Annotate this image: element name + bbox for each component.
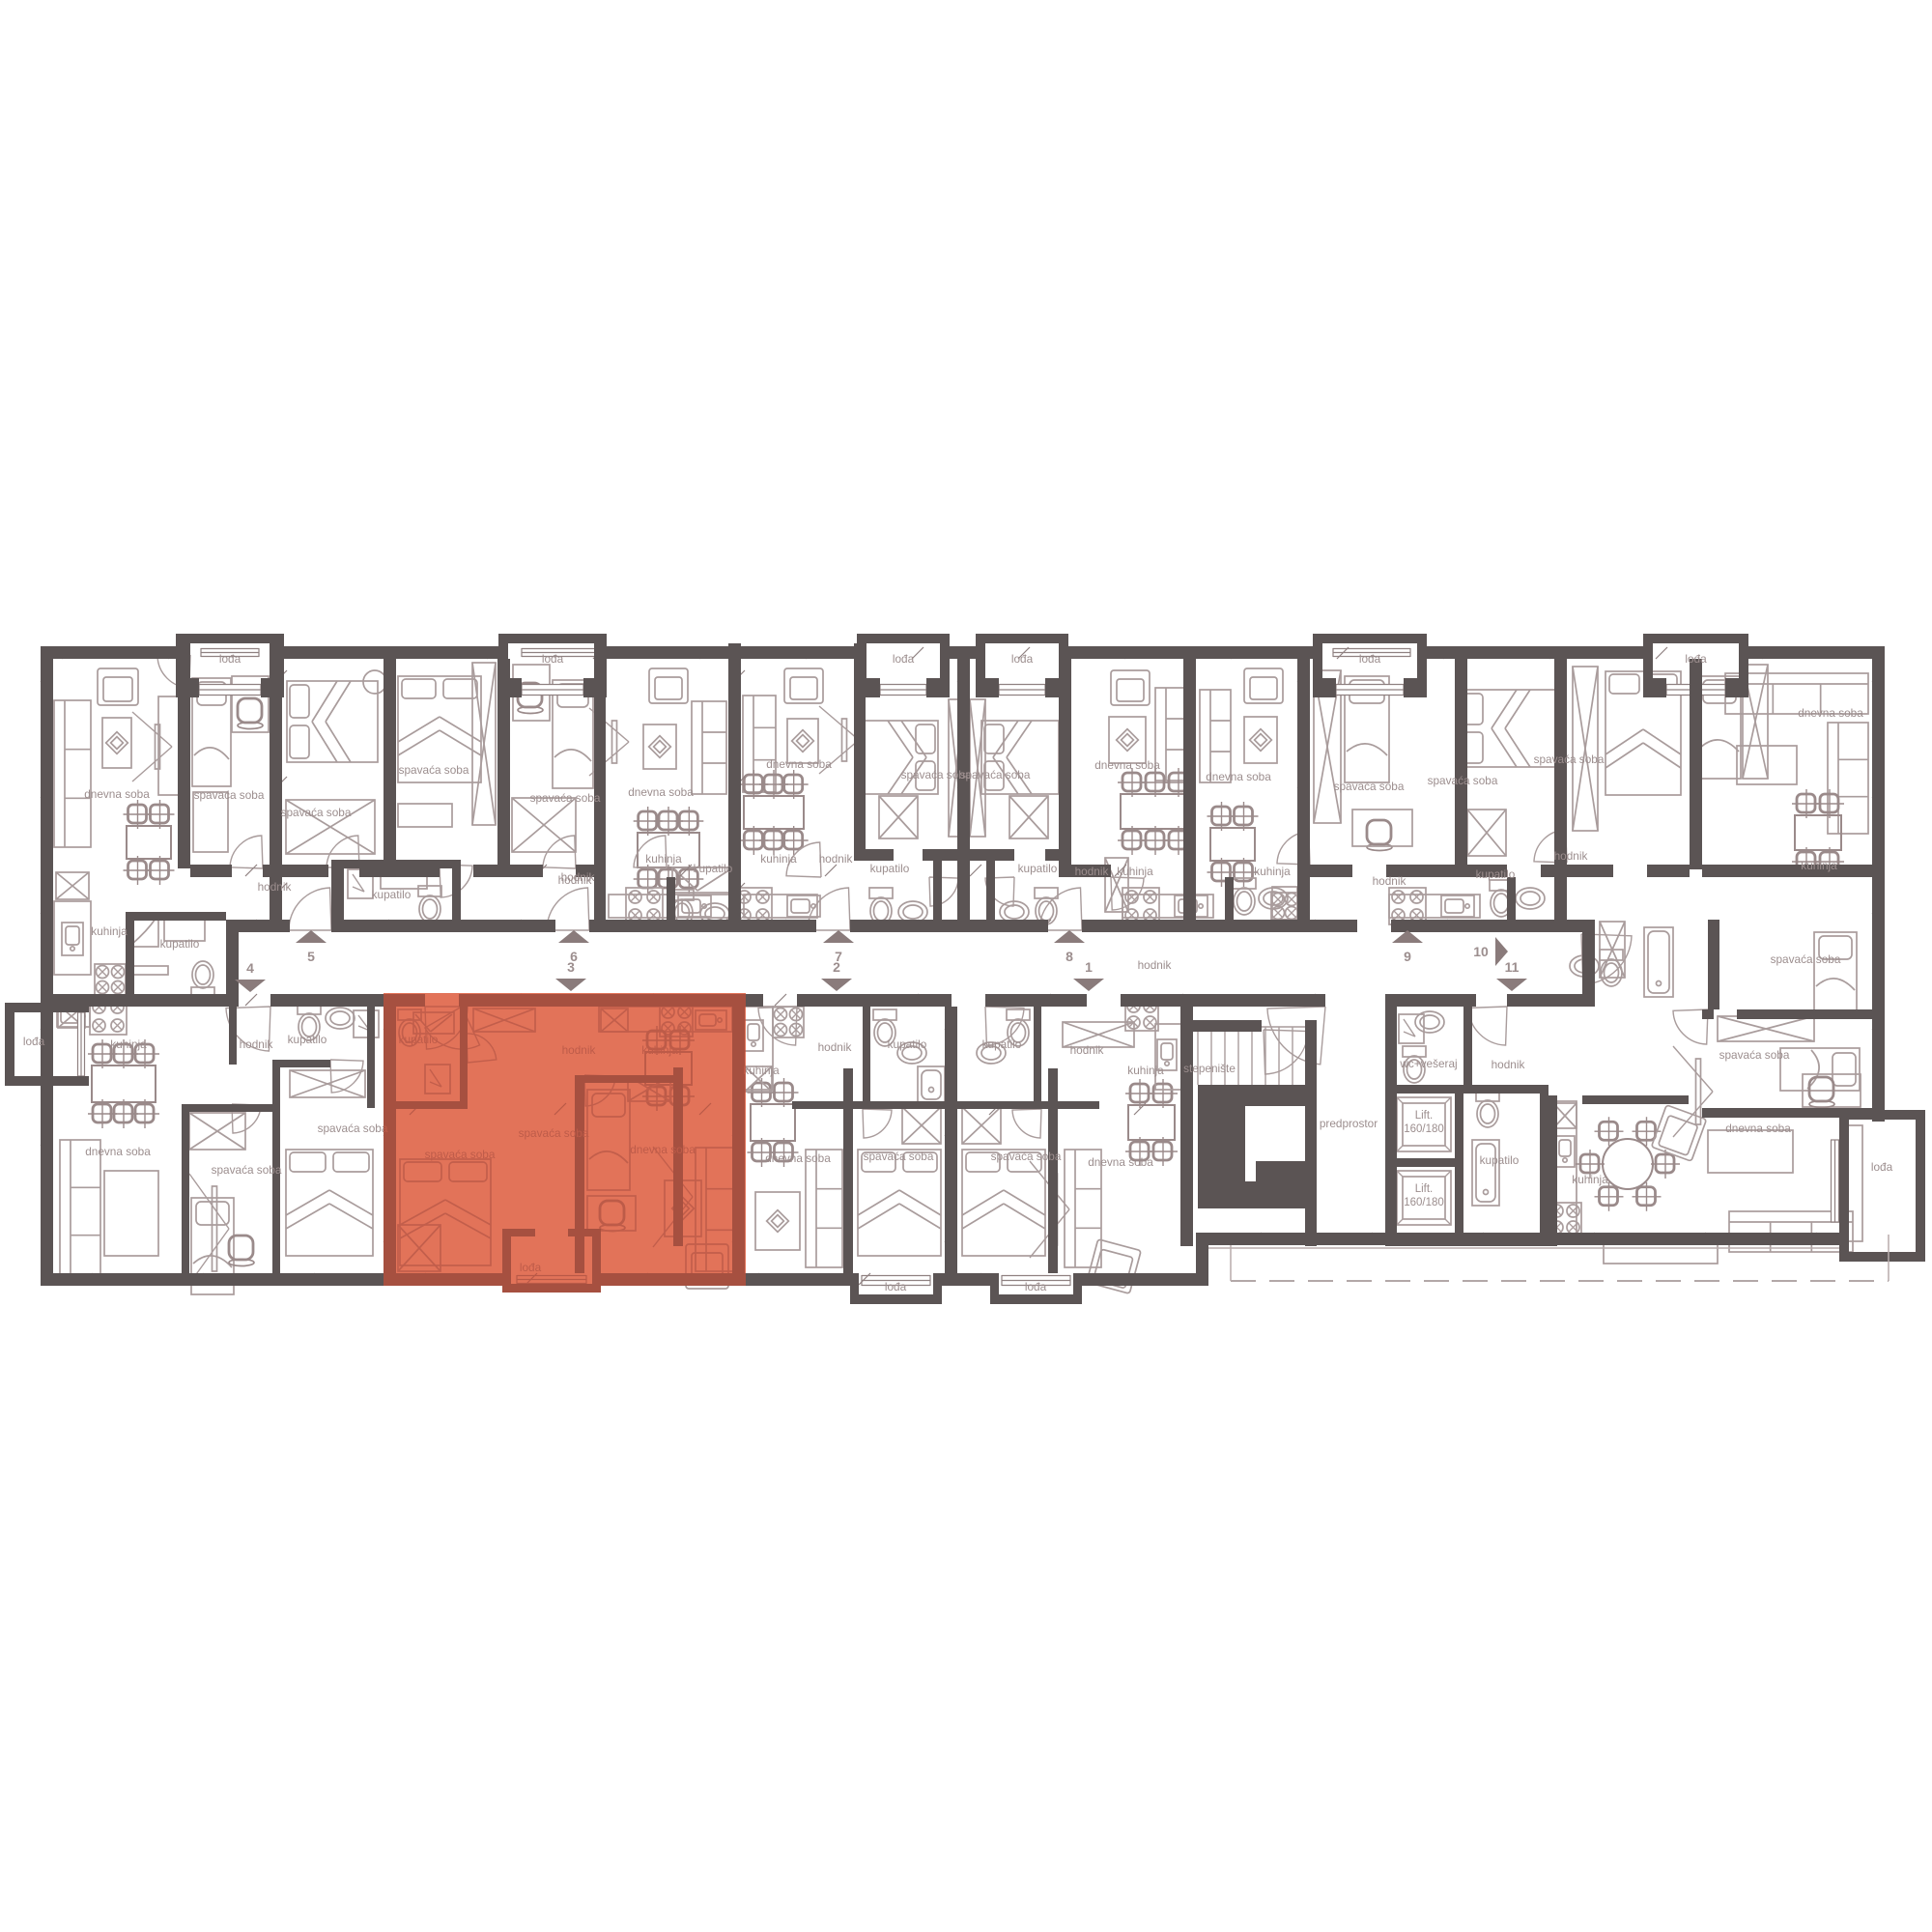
svg-text:dnevna soba: dnevna soba bbox=[84, 787, 150, 801]
svg-text:stepenište: stepenište bbox=[1183, 1062, 1236, 1075]
svg-text:kupatilo: kupatilo bbox=[1018, 862, 1058, 875]
svg-text:dnevna soba: dnevna soba bbox=[1798, 706, 1863, 720]
svg-text:spavaća soba: spavaća soba bbox=[960, 768, 1031, 781]
svg-text:spavaća soba: spavaća soba bbox=[1428, 774, 1498, 787]
svg-text:hodnik: hodnik bbox=[1070, 1043, 1104, 1057]
svg-text:11: 11 bbox=[1505, 959, 1520, 975]
svg-text:kuhinja: kuhinja bbox=[91, 924, 128, 938]
svg-text:hodnik: hodnik bbox=[240, 1037, 273, 1051]
svg-text:kuhinja: kuhinja bbox=[1801, 859, 1837, 872]
svg-text:lođa: lođa bbox=[1871, 1160, 1893, 1174]
svg-text:kuhinja: kuhinja bbox=[1127, 1064, 1164, 1077]
svg-text:dnevna soba: dnevna soba bbox=[1088, 1155, 1153, 1169]
svg-text:lođa: lođa bbox=[1685, 652, 1707, 666]
svg-text:4: 4 bbox=[246, 960, 254, 976]
svg-text:Lift.: Lift. bbox=[1415, 1183, 1434, 1195]
svg-text:spavaća soba: spavaća soba bbox=[1334, 780, 1405, 793]
svg-text:9: 9 bbox=[1404, 949, 1411, 964]
svg-text:160/180: 160/180 bbox=[1404, 1123, 1444, 1135]
svg-text:kuhinja: kuhinja bbox=[1572, 1173, 1608, 1186]
svg-text:hodnik: hodnik bbox=[561, 870, 595, 884]
svg-text:kupatilo: kupatilo bbox=[1476, 867, 1516, 881]
svg-text:spavaća soba: spavaća soba bbox=[864, 1150, 934, 1163]
svg-text:kupatilo: kupatilo bbox=[870, 862, 910, 875]
svg-text:kupatilo: kupatilo bbox=[288, 1033, 327, 1046]
svg-text:dnevna soba: dnevna soba bbox=[85, 1145, 151, 1158]
svg-text:lođa: lođa bbox=[1011, 652, 1034, 666]
svg-text:hodnik: hodnik bbox=[1373, 874, 1406, 888]
svg-text:dnevna soba: dnevna soba bbox=[766, 757, 832, 771]
svg-text:kuhinja: kuhinja bbox=[760, 852, 797, 866]
svg-text:hodnik: hodnik bbox=[819, 852, 853, 866]
svg-text:kupatilo: kupatilo bbox=[160, 937, 200, 951]
svg-text:kupatilo: kupatilo bbox=[888, 1037, 927, 1051]
svg-text:lođa: lođa bbox=[1359, 652, 1381, 666]
svg-text:dnevna soba: dnevna soba bbox=[1206, 770, 1271, 783]
svg-text:hodnik: hodnik bbox=[1138, 958, 1172, 972]
svg-text:spavaća soba: spavaća soba bbox=[1534, 753, 1605, 766]
svg-text:1: 1 bbox=[1085, 959, 1093, 975]
svg-text:spavaća soba: spavaća soba bbox=[1771, 952, 1841, 966]
svg-text:kuhinja: kuhinja bbox=[1117, 865, 1153, 878]
svg-text:kuhinja: kuhinja bbox=[110, 1037, 147, 1051]
svg-text:2: 2 bbox=[833, 959, 840, 975]
svg-text:lođa: lođa bbox=[885, 1280, 907, 1293]
svg-text:lođa: lođa bbox=[1025, 1280, 1047, 1293]
svg-text:lođa: lođa bbox=[219, 652, 241, 666]
svg-text:hodnik: hodnik bbox=[1492, 1058, 1525, 1071]
svg-text:8: 8 bbox=[1065, 949, 1073, 964]
svg-text:160/180: 160/180 bbox=[1404, 1197, 1444, 1208]
svg-text:kupatilo: kupatilo bbox=[982, 1037, 1022, 1051]
svg-text:hodnik: hodnik bbox=[818, 1040, 852, 1054]
svg-text:spavaća soba: spavaća soba bbox=[281, 806, 352, 819]
svg-text:dnevna soba: dnevna soba bbox=[765, 1151, 831, 1165]
svg-text:hodnik: hodnik bbox=[258, 880, 292, 894]
svg-text:10: 10 bbox=[1473, 944, 1489, 959]
svg-text:5: 5 bbox=[307, 949, 315, 964]
svg-text:wc+vešeraj: wc+vešeraj bbox=[1399, 1057, 1457, 1070]
svg-text:kuhinja: kuhinja bbox=[1254, 865, 1291, 878]
svg-text:hodnik: hodnik bbox=[1554, 849, 1588, 863]
svg-text:3: 3 bbox=[567, 959, 575, 975]
svg-text:spavaća soba: spavaća soba bbox=[194, 788, 265, 802]
svg-text:kuhinja: kuhinja bbox=[645, 852, 682, 866]
svg-text:spavaća soba: spavaća soba bbox=[318, 1122, 388, 1135]
svg-text:dnevna soba: dnevna soba bbox=[1725, 1122, 1791, 1135]
svg-text:spavaća soba: spavaća soba bbox=[991, 1150, 1062, 1163]
svg-text:hodnik: hodnik bbox=[1075, 865, 1109, 878]
svg-text:kupatilo: kupatilo bbox=[1480, 1153, 1520, 1167]
svg-text:kuhinja: kuhinja bbox=[743, 1064, 780, 1077]
svg-text:dnevna soba: dnevna soba bbox=[628, 785, 694, 799]
svg-text:predprostor: predprostor bbox=[1320, 1117, 1378, 1130]
svg-text:spavaća soba: spavaća soba bbox=[530, 791, 601, 805]
svg-text:spavaća soba: spavaća soba bbox=[212, 1163, 282, 1177]
svg-text:lođa: lođa bbox=[542, 652, 564, 666]
svg-text:spavaća soba: spavaća soba bbox=[399, 763, 469, 777]
svg-text:kupatilo: kupatilo bbox=[372, 888, 412, 901]
svg-text:dnevna soba: dnevna soba bbox=[1094, 758, 1160, 772]
svg-text:lođa: lođa bbox=[23, 1035, 45, 1048]
svg-text:kupatilo: kupatilo bbox=[694, 862, 733, 875]
svg-text:spavaća soba: spavaća soba bbox=[1719, 1048, 1790, 1062]
svg-text:Lift.: Lift. bbox=[1415, 1110, 1434, 1122]
svg-text:lođa: lođa bbox=[893, 652, 915, 666]
